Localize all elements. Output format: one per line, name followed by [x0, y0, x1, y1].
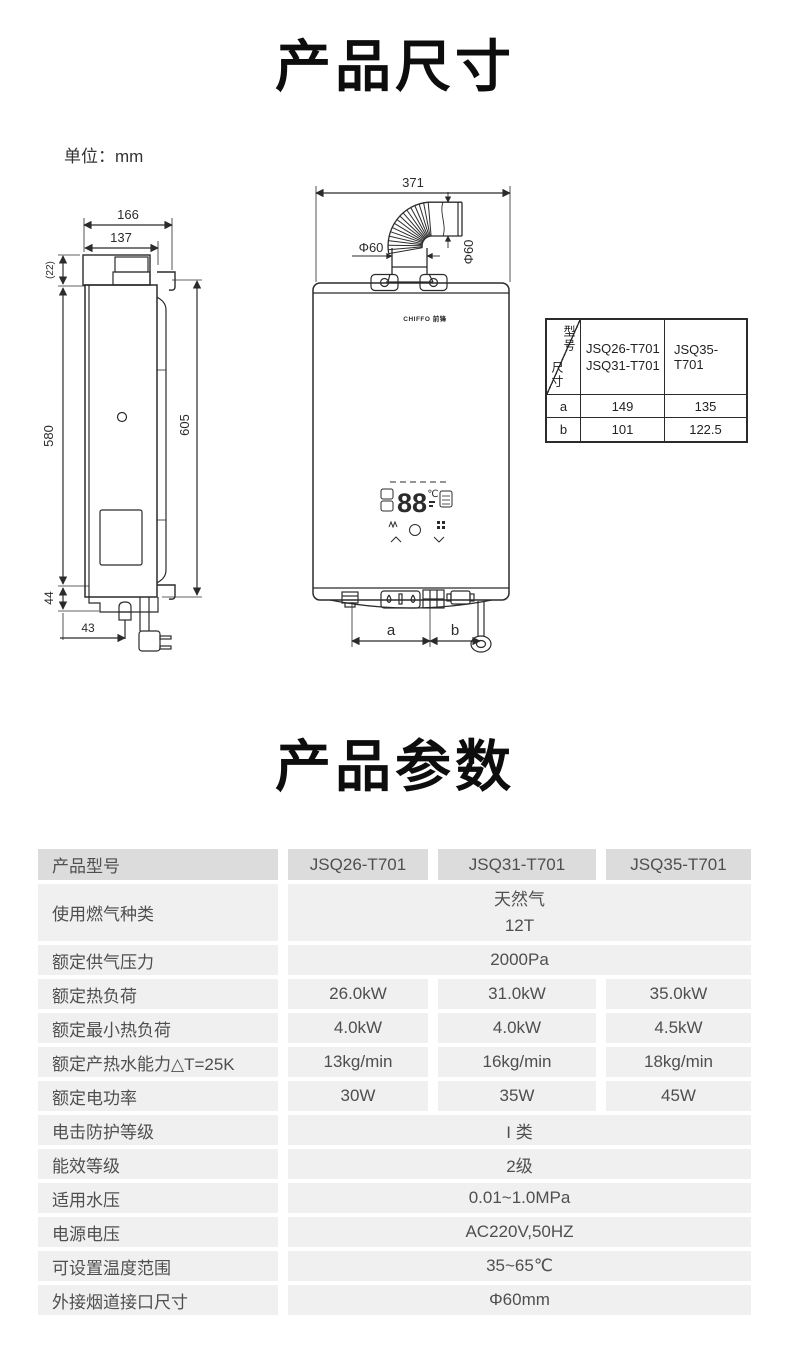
spec-cell-value: 31.0kW	[438, 979, 596, 1009]
size-row-value: 122.5	[664, 417, 746, 441]
size-row-value: 149	[580, 394, 664, 417]
display-icon-left-top	[381, 489, 393, 499]
dim-depth-body: 137	[110, 230, 132, 245]
model-name: JSQ31-T701	[586, 357, 660, 374]
spec-cell-value: 35W	[438, 1081, 596, 1111]
celsius-icon: ℃	[427, 489, 438, 500]
spec-row-label: 适用水压	[38, 1183, 278, 1213]
size-table-corner-cell: 型号 尺寸	[547, 320, 580, 394]
up-arrow-icon	[391, 537, 401, 542]
spec-cell-merged: 2级	[288, 1149, 751, 1179]
corner-model-label: 型号	[561, 325, 578, 353]
section-params-title: 产品参数	[0, 722, 790, 803]
unit-label: 单位：mm	[64, 142, 143, 167]
spec-cell-merged: 2000Pa	[288, 945, 751, 975]
size-row-dim: a	[547, 394, 580, 417]
spec-row-label: 可设置温度范围	[38, 1251, 278, 1281]
spec-row-label: 额定热负荷	[38, 979, 278, 1009]
power-button-icon	[410, 525, 421, 536]
spec-header-model3: JSQ35-T701	[606, 849, 751, 880]
display-digits: 88	[397, 488, 427, 518]
spec-header-model2: JSQ31-T701	[438, 849, 596, 880]
spec-cell-value: 26.0kW	[288, 979, 428, 1009]
spec-cell-value: 13kg/min	[288, 1047, 428, 1077]
spec-row-label: 额定最小热负荷	[38, 1013, 278, 1043]
size-table-models-a: JSQ26-T701 JSQ31-T701	[580, 320, 664, 394]
merged-line: 天然气	[494, 887, 545, 913]
front-view-drawing: 371	[313, 175, 510, 652]
product-page: 产品尺寸 单位：mm 166 137	[0, 0, 790, 1362]
spec-cell-value: 30W	[288, 1081, 428, 1111]
flue-elbow	[388, 202, 431, 253]
brand-logo: CHIFFO 前锋	[403, 314, 447, 323]
spec-row-label: 额定电功率	[38, 1081, 278, 1111]
spec-cell-value: 4.0kW	[438, 1013, 596, 1043]
merged-line: 12T	[505, 913, 534, 939]
spec-cell-merged: I 类	[288, 1115, 751, 1145]
dim-bottom-offset: 43	[81, 621, 95, 635]
spec-header-label: 产品型号	[38, 849, 278, 880]
spec-row-label: 额定产热水能力△T=25K	[38, 1047, 278, 1077]
dim-cap-height: (22)	[45, 261, 56, 279]
size-row-dim: b	[547, 417, 580, 441]
display-icon-left-bottom	[381, 501, 393, 511]
dim-a-label: a	[387, 622, 396, 639]
spec-cell-value: 16kg/min	[438, 1047, 596, 1077]
dim-body-height: 580	[41, 425, 56, 447]
down-arrow-icon	[434, 537, 444, 542]
spec-row-label: 电击防护等级	[38, 1115, 278, 1145]
spec-cell-value: 4.5kW	[606, 1013, 751, 1043]
spec-table: 产品型号 JSQ26-T701 JSQ31-T701 JSQ35-T701 使用…	[38, 849, 751, 1315]
size-row-value: 101	[580, 417, 664, 441]
flame-icon	[389, 522, 397, 527]
side-panel-rect	[100, 510, 142, 565]
dim-flue-diameter-left: Φ60	[359, 240, 384, 255]
display-panel: 88 ℃	[381, 482, 452, 542]
shower-head	[471, 636, 491, 652]
water-drop-icon	[411, 595, 415, 603]
power-plug	[139, 631, 160, 651]
spec-row-label: 额定供气压力	[38, 945, 278, 975]
spec-row-label: 外接烟道接口尺寸	[38, 1285, 278, 1315]
spec-header-model1: JSQ26-T701	[288, 849, 428, 880]
spec-cell-merged: Φ60mm	[288, 1285, 751, 1315]
side-view-drawing: 166 137	[41, 207, 202, 651]
dim-flue-diameter-right: Φ60	[461, 240, 476, 265]
spec-cell-merged: 0.01~1.0MPa	[288, 1183, 751, 1213]
spec-cell-merged: 天然气 12T	[288, 884, 751, 941]
size-table: 型号 尺寸 JSQ26-T701 JSQ31-T701 JSQ35-T701 a…	[545, 318, 748, 443]
side-screw-hole	[118, 413, 127, 422]
spec-cell-value: 45W	[606, 1081, 751, 1111]
spec-row-label: 能效等级	[38, 1149, 278, 1179]
spec-row-label: 使用燃气种类	[38, 884, 278, 941]
water-drop-icon	[387, 595, 391, 603]
section-dimensions-title: 产品尺寸	[0, 22, 790, 103]
size-table-model-b: JSQ35-T701	[664, 320, 746, 394]
corner-size-label: 尺寸	[549, 361, 566, 389]
dim-bottom-height: 44	[42, 591, 56, 605]
display-icon-right	[440, 491, 452, 507]
spec-row-label: 电源电压	[38, 1217, 278, 1247]
dim-mount-height: 605	[177, 414, 192, 436]
spec-cell-value: 4.0kW	[288, 1013, 428, 1043]
heater-body	[313, 283, 509, 600]
size-row-value: 135	[664, 394, 746, 417]
dim-total-width: 371	[402, 175, 424, 190]
spec-cell-merged: 35~65℃	[288, 1251, 751, 1281]
model-name: JSQ26-T701	[586, 340, 660, 357]
dim-depth-total: 166	[117, 207, 139, 222]
spec-cell-value: 18kg/min	[606, 1047, 751, 1077]
dim-b-label: b	[451, 622, 459, 639]
spec-cell-value: 35.0kW	[606, 979, 751, 1009]
spec-cell-merged: AC220V,50HZ	[288, 1217, 751, 1247]
